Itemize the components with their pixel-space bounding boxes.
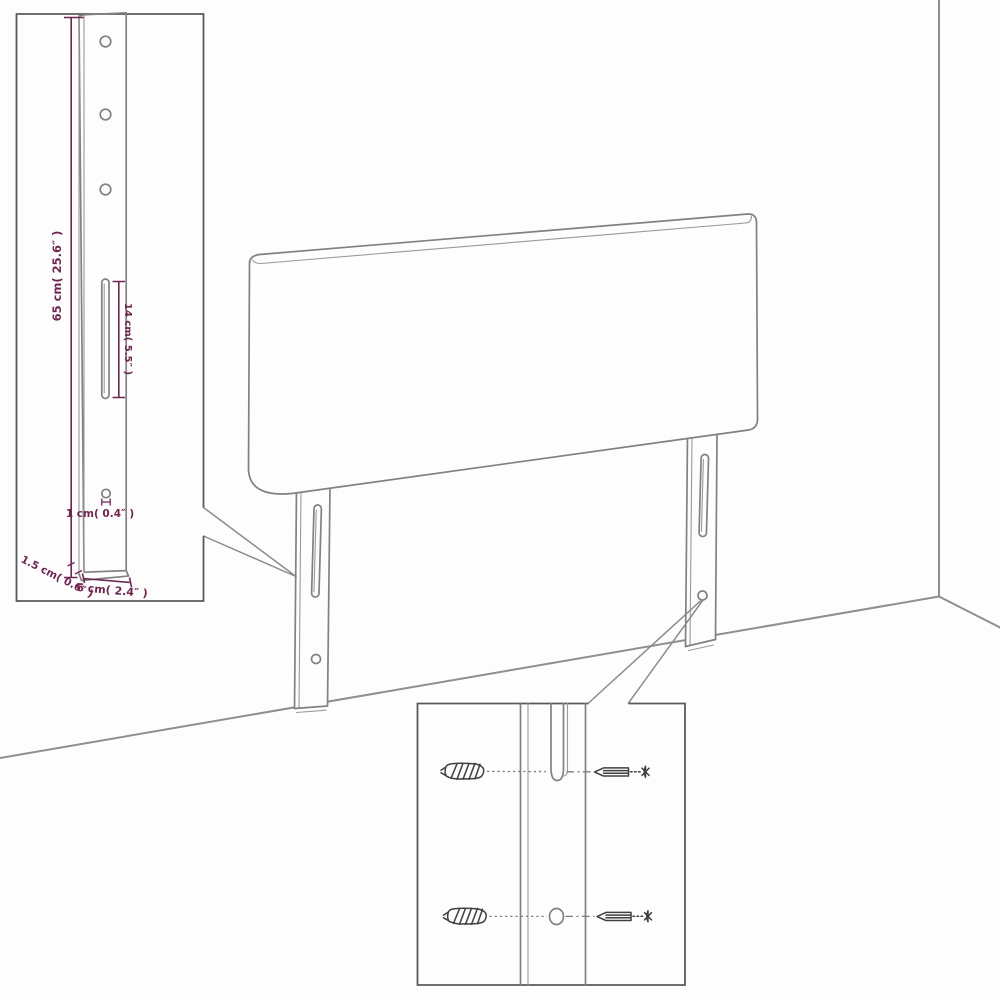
headboard-left-leg: [294, 486, 330, 713]
label-leg-height: 65 cm( 25.6″ ): [50, 231, 64, 322]
mounting-detail-inset: [418, 704, 686, 986]
wall-plug-icon: [441, 763, 484, 779]
strip-slot: [551, 704, 564, 781]
hardware-connector-lines: [487, 771, 595, 916]
dim-bracket-1cm: [102, 499, 110, 506]
inset-leg-drawing: [79, 13, 129, 581]
leg-dimension-inset: 65 cm( 25.6″ ) 14 cm( 5.5″ ) 1 cm( 0.4″ …: [17, 13, 204, 601]
callout-lines-left-inset: [204, 508, 297, 577]
leg-hole-middle: [100, 109, 111, 120]
floor-line-left: [0, 597, 939, 759]
screw-icon: [597, 911, 652, 922]
inset-leg-strip: [521, 704, 586, 986]
label-slot-length: 14 cm( 5.5″ ): [122, 303, 133, 375]
dimension-marks: [64, 18, 132, 588]
screw-icon: [595, 766, 650, 777]
dim-ticks-1-5cm: [68, 563, 83, 575]
leg-hole-top: [100, 36, 111, 47]
wall-plug-icon: [444, 908, 487, 924]
label-hole-diameter: 1 cm( 0.4″ ): [66, 508, 134, 520]
strip-hole: [550, 909, 564, 925]
leg-small-hole: [102, 489, 110, 497]
diagram-canvas: 65 cm( 25.6″ ) 14 cm( 5.5″ ) 1 cm( 0.4″ …: [0, 0, 1000, 1000]
floor-line-right: [939, 597, 1000, 628]
headboard-panel: [249, 214, 758, 494]
leg-hole-lower: [100, 184, 111, 195]
leg-slot: [102, 279, 109, 399]
diagram-stage: 65 cm( 25.6″ ) 14 cm( 5.5″ ) 1 cm( 0.4″ …: [0, 0, 1000, 1000]
